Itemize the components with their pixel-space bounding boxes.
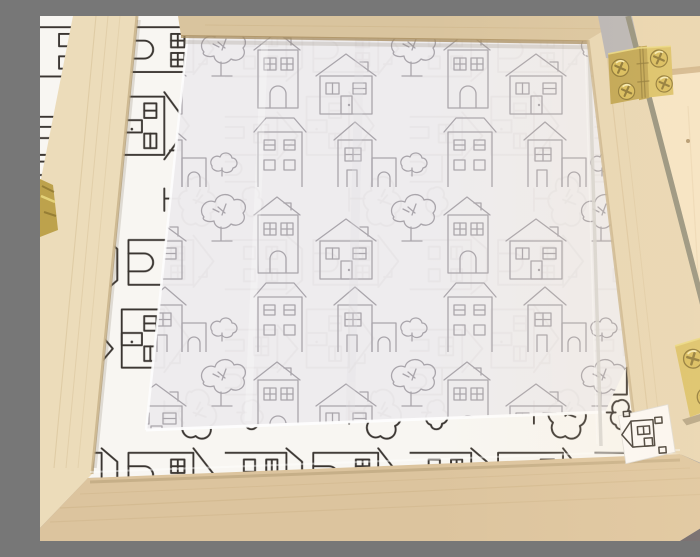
- frame-top-rail: [178, 16, 644, 48]
- screw: [618, 83, 635, 100]
- screw: [656, 75, 673, 92]
- photo-canvas: [40, 16, 700, 541]
- screw: [611, 59, 629, 77]
- photo-of-open-wooden-box: Close-up photograph of an open pale-wood…: [40, 16, 700, 541]
- wood-knot: [686, 139, 690, 143]
- screw: [650, 49, 668, 67]
